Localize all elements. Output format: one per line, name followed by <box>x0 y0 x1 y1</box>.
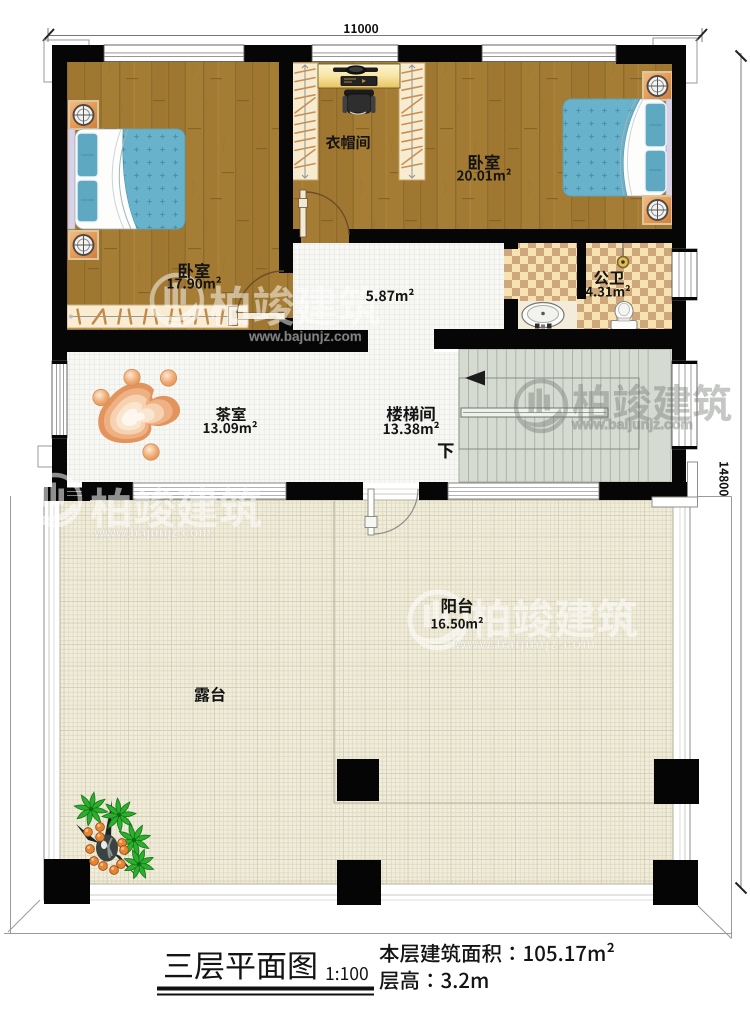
svg-text:www.baijunjz.com: www.baijunjz.com <box>454 637 596 653</box>
svg-text:www.bajunjz.com: www.bajunjz.com <box>93 524 211 540</box>
svg-text:www.baijunjz.com: www.baijunjz.com <box>571 416 693 432</box>
svg-text:www.bajunjz.com: www.bajunjz.com <box>248 329 362 344</box>
